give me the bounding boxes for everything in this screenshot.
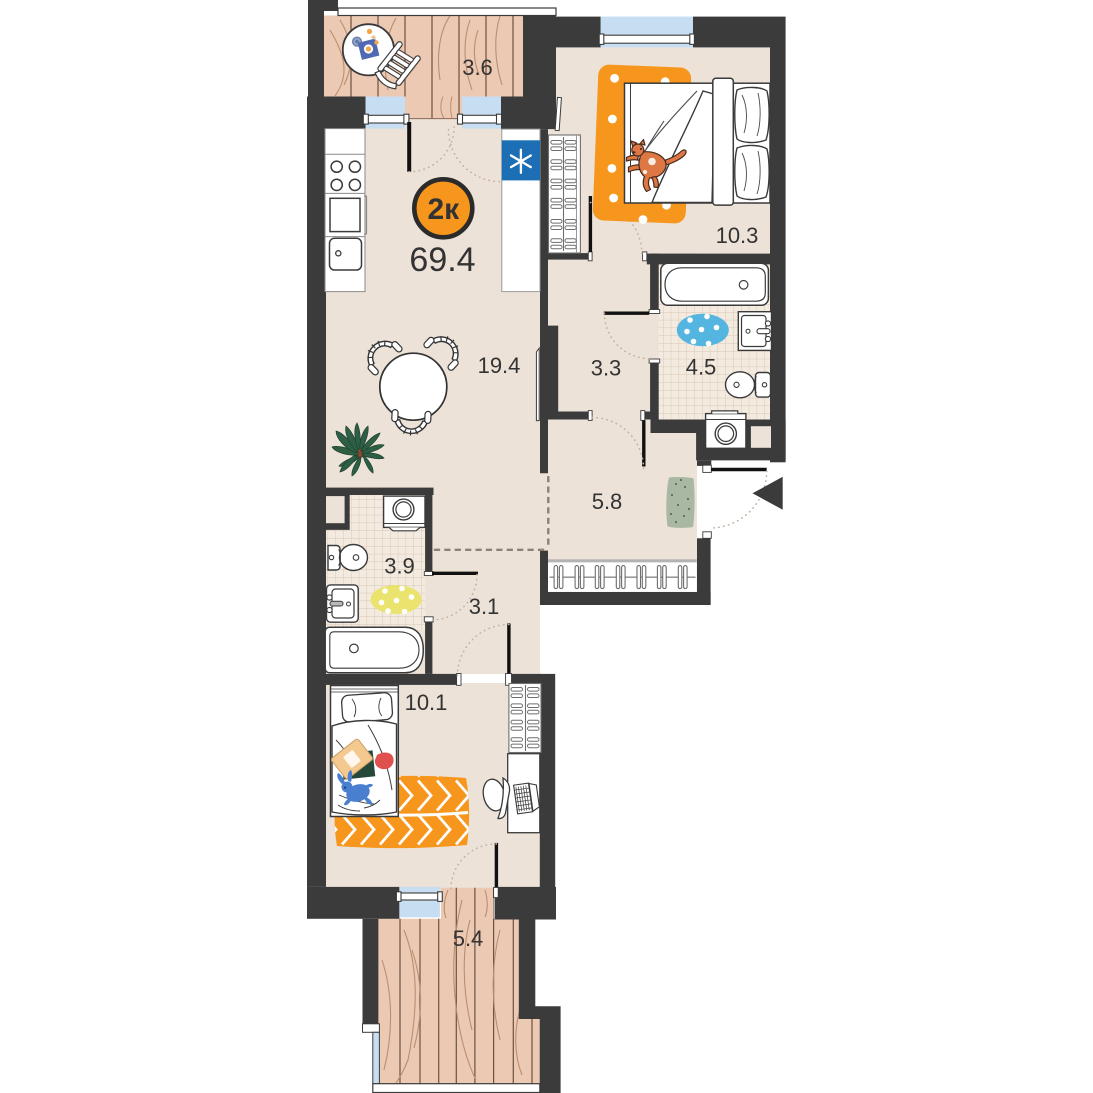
svg-text:10.3: 10.3 xyxy=(716,223,759,248)
svg-text:3.1: 3.1 xyxy=(469,594,500,619)
svg-text:19.4: 19.4 xyxy=(478,353,521,378)
svg-text:3.6: 3.6 xyxy=(462,55,493,80)
svg-text:5.8: 5.8 xyxy=(592,489,623,514)
svg-text:2к: 2к xyxy=(427,193,460,226)
svg-text:4.5: 4.5 xyxy=(686,355,717,380)
svg-text:10.1: 10.1 xyxy=(405,690,448,715)
svg-text:69.4: 69.4 xyxy=(409,241,475,279)
svg-text:3.9: 3.9 xyxy=(384,553,415,578)
svg-text:5.4: 5.4 xyxy=(453,926,484,951)
svg-text:3.3: 3.3 xyxy=(591,356,622,381)
